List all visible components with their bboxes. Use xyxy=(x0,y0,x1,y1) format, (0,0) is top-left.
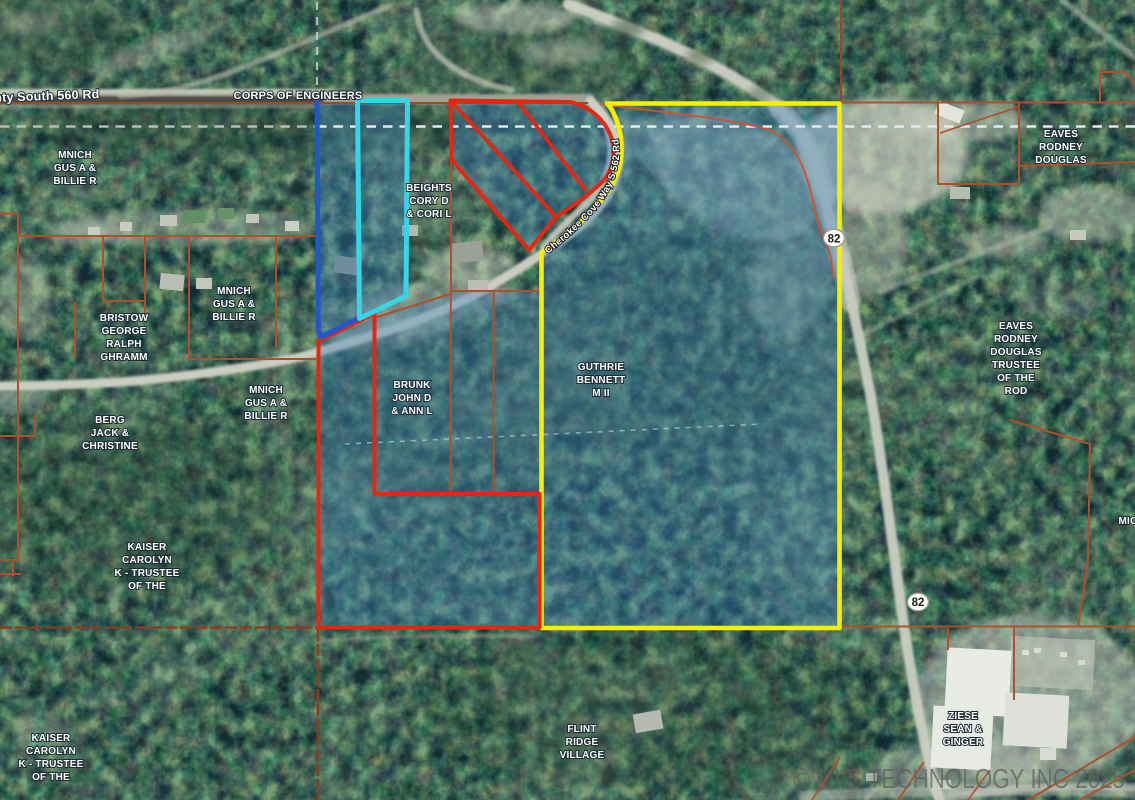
svg-text:82: 82 xyxy=(828,234,841,246)
svg-text:BRUNKJOHN D& ANN L: BRUNKJOHN D& ANN L xyxy=(391,380,433,417)
svg-text:ZIESESEAN &GINGER: ZIESESEAN &GINGER xyxy=(943,711,984,748)
svg-text:MIC: MIC xyxy=(1119,516,1135,527)
svg-text:82: 82 xyxy=(912,597,925,609)
svg-text:BEIGHTSCORY D& CORI L: BEIGHTSCORY D& CORI L xyxy=(406,183,452,220)
svg-text:MNICHGUS A &BILLIE R: MNICHGUS A &BILLIE R xyxy=(53,150,97,187)
svg-text:MNICHGUS A &BILLIE R: MNICHGUS A &BILLIE R xyxy=(212,286,256,323)
svg-text:© MLS TECHNOLOGY INC 2025: © MLS TECHNOLOGY INC 2025 xyxy=(793,763,1125,794)
svg-text:MNICHGUS A &BILLIE R: MNICHGUS A &BILLIE R xyxy=(244,385,288,422)
svg-text:CORPS OF ENGINEERS: CORPS OF ENGINEERS xyxy=(234,90,363,102)
